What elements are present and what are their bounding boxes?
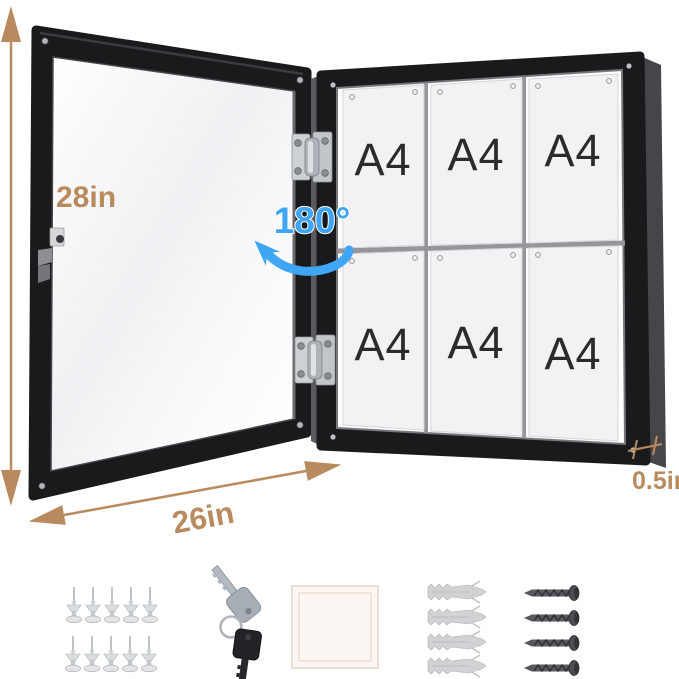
rivet: [297, 422, 303, 428]
hinge-bottom: [295, 335, 335, 385]
push-pins: [65, 587, 157, 672]
wall-anchors: [428, 581, 486, 677]
a4-label: A4: [354, 134, 411, 185]
rivet: [330, 82, 335, 87]
hinge-top: [292, 132, 332, 182]
height-label: 28in: [56, 181, 116, 214]
depth-label: 0.5in: [632, 467, 679, 495]
rivet: [297, 77, 303, 83]
adhesive-pad: [292, 586, 378, 668]
rivet: [42, 38, 48, 44]
bulletin-board: A4 A4 A4 A4 A4 A4: [311, 56, 666, 468]
door-open: [33, 30, 307, 496]
product-image: A4 A4 A4 A4 A4 A4 28in 26in 0.5in 180°: [0, 0, 679, 679]
a4-label: A4: [447, 129, 504, 180]
a4-label: A4: [354, 319, 411, 370]
depth-dimension: 0.5in: [628, 436, 679, 495]
a4-label: A4: [544, 328, 601, 379]
width-label: 26in: [169, 495, 236, 541]
a4-label: A4: [544, 125, 601, 176]
door-swing-label: 180°: [274, 200, 351, 241]
keys: [204, 560, 263, 679]
rivet: [39, 483, 45, 489]
screws: [524, 586, 579, 676]
a4-label: A4: [447, 317, 504, 368]
rivet: [626, 63, 631, 68]
rivet: [330, 434, 335, 439]
